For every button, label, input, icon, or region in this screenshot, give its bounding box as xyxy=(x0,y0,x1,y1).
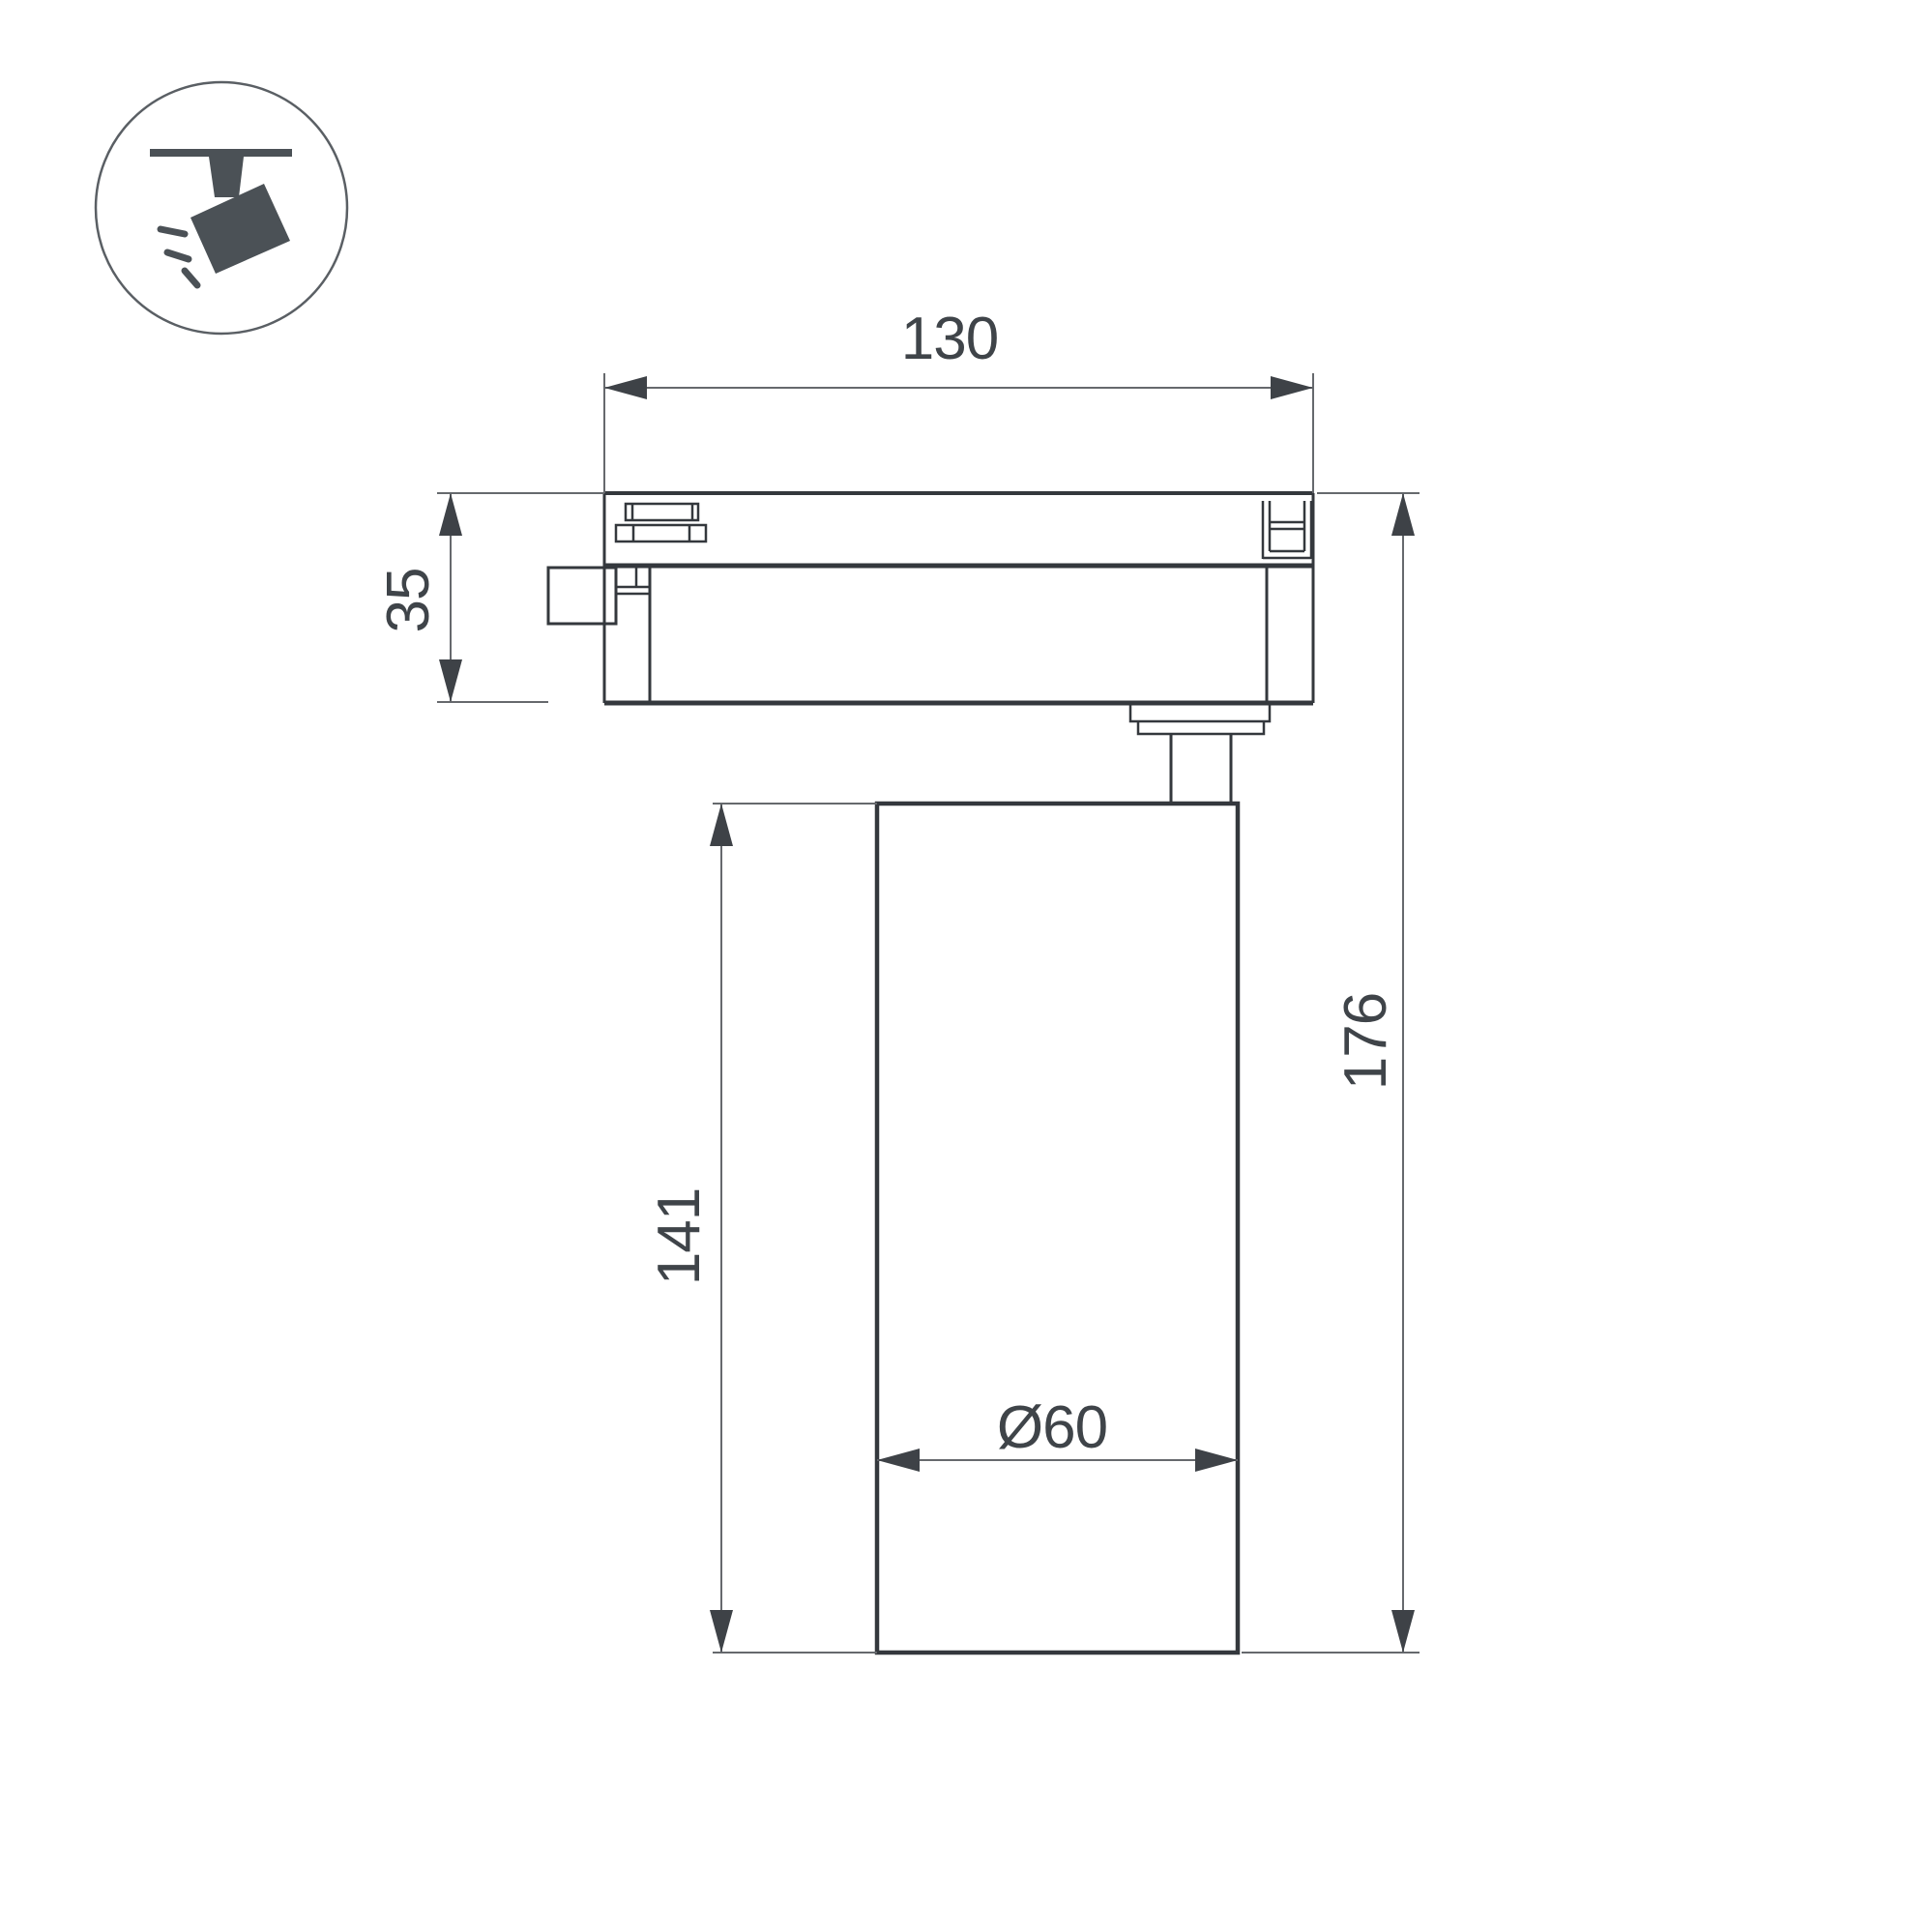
contact-clip-upper xyxy=(626,504,698,520)
arrow-up-icon xyxy=(439,493,462,536)
dimension-body-diameter: Ø60 xyxy=(877,1394,1238,1472)
technical-drawing-svg: 130 35 141 176 xyxy=(0,0,1932,1932)
neck-flange-upper xyxy=(1130,703,1270,721)
track-adapter xyxy=(548,493,1313,703)
arrow-down-icon xyxy=(710,1610,733,1653)
latch-channel xyxy=(1263,501,1311,559)
arrow-down-icon xyxy=(1391,1610,1415,1653)
knob-step-detail xyxy=(616,568,650,594)
arrow-right-icon xyxy=(1195,1449,1238,1472)
contact-clip-lower xyxy=(616,525,706,542)
arrow-left-icon xyxy=(877,1449,920,1472)
neck-flange-lower xyxy=(1138,721,1264,734)
track-rail-icon xyxy=(150,149,292,157)
arrow-left-icon xyxy=(604,376,647,399)
dimension-body-height: 141 xyxy=(646,804,877,1653)
drawing-canvas: 130 35 141 176 xyxy=(0,0,1932,1932)
dimension-label-141: 141 xyxy=(646,1188,713,1285)
dimension-label-130: 130 xyxy=(901,306,998,372)
dimension-track-width: 130 xyxy=(604,306,1313,493)
dimension-adapter-height: 35 xyxy=(375,493,604,702)
dimension-label-diameter: Ø60 xyxy=(997,1394,1107,1461)
track-stem-icon xyxy=(209,157,244,197)
dimension-label-35: 35 xyxy=(375,569,442,633)
fixture-drawing xyxy=(548,493,1313,1653)
track-light-icon xyxy=(96,82,347,334)
arrow-right-icon xyxy=(1271,376,1313,399)
dimension-total-height: 176 xyxy=(1242,493,1420,1653)
arrow-up-icon xyxy=(710,804,733,846)
dimension-label-176: 176 xyxy=(1332,993,1399,1090)
arrow-up-icon xyxy=(1391,493,1415,536)
lamp-body xyxy=(877,804,1238,1653)
mount-neck xyxy=(1130,703,1270,804)
arrow-down-icon xyxy=(439,659,462,702)
